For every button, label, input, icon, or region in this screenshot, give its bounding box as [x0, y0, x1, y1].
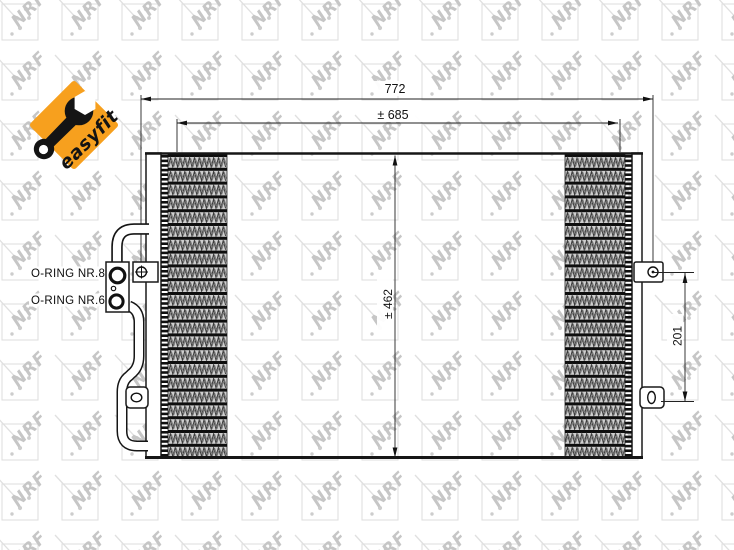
svg-text:NRF: NRF	[428, 288, 472, 332]
svg-text:NRF: NRF	[128, 0, 172, 31]
condenser-drawing-page: NRFNRFNRFNRFNRFNRFNRFNRFNRFNRFNRFNRFNRFN…	[0, 0, 734, 550]
svg-text:NRF: NRF	[308, 228, 352, 272]
svg-text:NRF: NRF	[668, 108, 712, 152]
svg-text:NRF: NRF	[8, 528, 52, 550]
dim-text-201: 201	[671, 326, 685, 346]
svg-text:NRF: NRF	[608, 0, 652, 31]
svg-text:NRF: NRF	[668, 528, 712, 550]
dimension-core-width: ± 685	[177, 108, 618, 125]
svg-text:NRF: NRF	[668, 228, 712, 272]
svg-text:NRF: NRF	[428, 408, 472, 452]
svg-text:NRF: NRF	[488, 0, 532, 31]
svg-text:NRF: NRF	[188, 108, 232, 152]
drawing-canvas: NRFNRFNRFNRFNRFNRFNRFNRFNRFNRFNRFNRFNRFN…	[0, 0, 734, 550]
easyfit-badge: easyfit	[29, 80, 124, 174]
svg-text:NRF: NRF	[248, 348, 292, 392]
svg-text:NRF: NRF	[488, 108, 532, 152]
svg-text:NRF: NRF	[608, 468, 652, 512]
svg-text:NRF: NRF	[248, 48, 292, 92]
svg-text:NRF: NRF	[68, 528, 112, 550]
svg-text:NRF: NRF	[428, 0, 472, 31]
svg-text:NRF: NRF	[608, 528, 652, 550]
svg-text:NRF: NRF	[248, 408, 292, 452]
svg-text:NRF: NRF	[8, 228, 52, 272]
svg-text:NRF: NRF	[488, 528, 532, 550]
svg-text:NRF: NRF	[368, 528, 412, 550]
right-header-tank	[632, 153, 642, 458]
dim-text-462: ± 462	[381, 289, 395, 319]
svg-text:NRF: NRF	[428, 108, 472, 152]
svg-text:NRF: NRF	[308, 528, 352, 550]
svg-text:NRF: NRF	[668, 408, 712, 452]
svg-text:NRF: NRF	[128, 48, 172, 92]
svg-text:NRF: NRF	[8, 348, 52, 392]
svg-text:NRF: NRF	[368, 168, 412, 212]
svg-text:NRF: NRF	[308, 288, 352, 332]
svg-text:NRF: NRF	[68, 468, 112, 512]
core-fins-right	[565, 154, 632, 457]
left-header-tank	[146, 153, 161, 458]
svg-text:NRF: NRF	[68, 0, 112, 31]
core-fins-left	[161, 154, 227, 457]
svg-text:NRF: NRF	[68, 348, 112, 392]
svg-text:NRF: NRF	[608, 48, 652, 92]
svg-text:NRF: NRF	[128, 108, 172, 152]
svg-text:NRF: NRF	[8, 468, 52, 512]
svg-text:NRF: NRF	[248, 528, 292, 550]
svg-text:NRF: NRF	[608, 108, 652, 152]
svg-text:NRF: NRF	[368, 408, 412, 452]
svg-text:NRF: NRF	[428, 48, 472, 92]
svg-text:NRF: NRF	[428, 348, 472, 392]
svg-text:NRF: NRF	[188, 528, 232, 550]
svg-text:NRF: NRF	[488, 48, 532, 92]
svg-text:NRF: NRF	[68, 228, 112, 272]
oring8-port	[110, 268, 125, 283]
svg-text:NRF: NRF	[8, 408, 52, 452]
mount-bracket-top-left	[133, 262, 158, 282]
svg-text:NRF: NRF	[548, 48, 592, 92]
svg-text:NRF: NRF	[248, 168, 292, 212]
svg-text:NRF: NRF	[368, 228, 412, 272]
svg-text:NRF: NRF	[128, 468, 172, 512]
svg-text:NRF: NRF	[668, 168, 712, 212]
svg-text:NRF: NRF	[308, 48, 352, 92]
svg-text:NRF: NRF	[248, 108, 292, 152]
svg-text:NRF: NRF	[428, 228, 472, 272]
svg-text:NRF: NRF	[308, 168, 352, 212]
svg-text:NRF: NRF	[488, 468, 532, 512]
svg-text:NRF: NRF	[8, 48, 52, 92]
svg-text:NRF: NRF	[668, 48, 712, 92]
svg-text:NRF: NRF	[368, 468, 412, 512]
svg-text:NRF: NRF	[488, 408, 532, 452]
svg-text:NRF: NRF	[8, 168, 52, 212]
svg-text:NRF: NRF	[548, 0, 592, 31]
svg-text:NRF: NRF	[428, 168, 472, 212]
svg-text:NRF: NRF	[248, 288, 292, 332]
svg-text:NRF: NRF	[308, 348, 352, 392]
svg-text:NRF: NRF	[488, 348, 532, 392]
dim-text-772: 772	[385, 82, 406, 96]
mount-bracket-bottom-right	[640, 387, 664, 408]
svg-text:NRF: NRF	[68, 168, 112, 212]
svg-text:NRF: NRF	[188, 0, 232, 31]
svg-text:NRF: NRF	[368, 348, 412, 392]
svg-text:NRF: NRF	[428, 468, 472, 512]
svg-text:NRF: NRF	[308, 468, 352, 512]
svg-text:NRF: NRF	[248, 0, 292, 31]
pilot-hole	[111, 286, 115, 290]
svg-text:NRF: NRF	[668, 0, 712, 31]
svg-text:NRF: NRF	[248, 468, 292, 512]
svg-text:NRF: NRF	[548, 108, 592, 152]
mount-bracket-top-right	[634, 262, 663, 282]
svg-text:NRF: NRF	[548, 528, 592, 550]
svg-text:NRF: NRF	[728, 0, 734, 31]
svg-text:NRF: NRF	[128, 528, 172, 550]
svg-text:NRF: NRF	[308, 408, 352, 452]
svg-text:NRF: NRF	[488, 288, 532, 332]
oring6-label: O-RING NR.6	[31, 295, 105, 307]
oring8-label: O-RING NR.8	[31, 268, 105, 280]
svg-text:NRF: NRF	[548, 468, 592, 512]
svg-text:NRF: NRF	[368, 0, 412, 31]
svg-text:NRF: NRF	[668, 468, 712, 512]
svg-text:NRF: NRF	[8, 0, 52, 31]
dim-text-685: ± 685	[377, 108, 408, 122]
svg-text:NRF: NRF	[308, 108, 352, 152]
svg-text:NRF: NRF	[188, 48, 232, 92]
svg-text:NRF: NRF	[308, 0, 352, 31]
svg-text:NRF: NRF	[488, 228, 532, 272]
svg-text:NRF: NRF	[428, 528, 472, 550]
pipe-connector-block	[106, 262, 129, 312]
svg-text:NRF: NRF	[728, 528, 734, 550]
mount-bracket-bottom-left	[126, 387, 148, 408]
svg-text:NRF: NRF	[248, 228, 292, 272]
svg-text:NRF: NRF	[488, 168, 532, 212]
svg-text:NRF: NRF	[68, 408, 112, 452]
svg-text:NRF: NRF	[188, 468, 232, 512]
oring6-port	[110, 295, 123, 308]
